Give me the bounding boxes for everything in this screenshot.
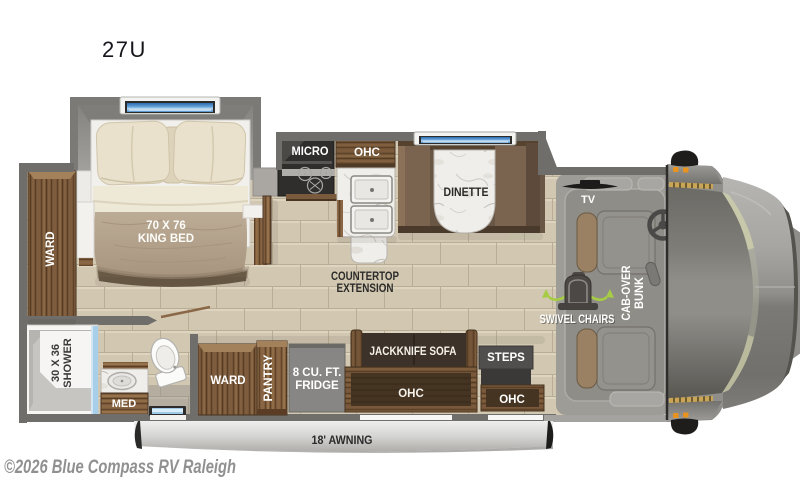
svg-text:8 CU. FT.: 8 CU. FT.: [293, 367, 342, 379]
svg-text:FRIDGE: FRIDGE: [295, 380, 339, 392]
svg-text:OHC: OHC: [398, 388, 424, 400]
svg-text:EXTENSION: EXTENSION: [337, 283, 394, 295]
svg-text:27U: 27U: [102, 37, 147, 62]
svg-text:DINETTE: DINETTE: [444, 187, 489, 199]
svg-text:70 X 76: 70 X 76: [146, 220, 186, 232]
svg-text:JACKKNIFE SOFA: JACKKNIFE SOFA: [370, 346, 457, 358]
svg-text:KING BED: KING BED: [138, 233, 194, 245]
svg-text:30 X 36: 30 X 36: [50, 344, 62, 382]
svg-text:WARD: WARD: [210, 375, 245, 387]
svg-text:BUNK: BUNK: [634, 276, 646, 309]
svg-text:CAB-OVER: CAB-OVER: [621, 265, 633, 321]
svg-text:SWIVEL CHAIRS: SWIVEL CHAIRS: [540, 314, 615, 326]
svg-text:STEPS: STEPS: [487, 352, 525, 364]
svg-text:OHC: OHC: [354, 147, 380, 159]
svg-text:18' AWNING: 18' AWNING: [312, 435, 373, 447]
svg-text:©2026 Blue Compass RV Raleigh: ©2026 Blue Compass RV Raleigh: [4, 457, 236, 478]
svg-text:WARD: WARD: [45, 231, 57, 266]
svg-text:OHC: OHC: [499, 394, 525, 406]
svg-text:TV: TV: [581, 194, 596, 206]
svg-text:COUNTERTOP: COUNTERTOP: [331, 271, 399, 283]
svg-text:MED: MED: [112, 398, 137, 410]
svg-text:MICRO: MICRO: [292, 146, 329, 158]
svg-text:PANTRY: PANTRY: [263, 354, 275, 401]
svg-text:SHOWER: SHOWER: [62, 338, 74, 388]
